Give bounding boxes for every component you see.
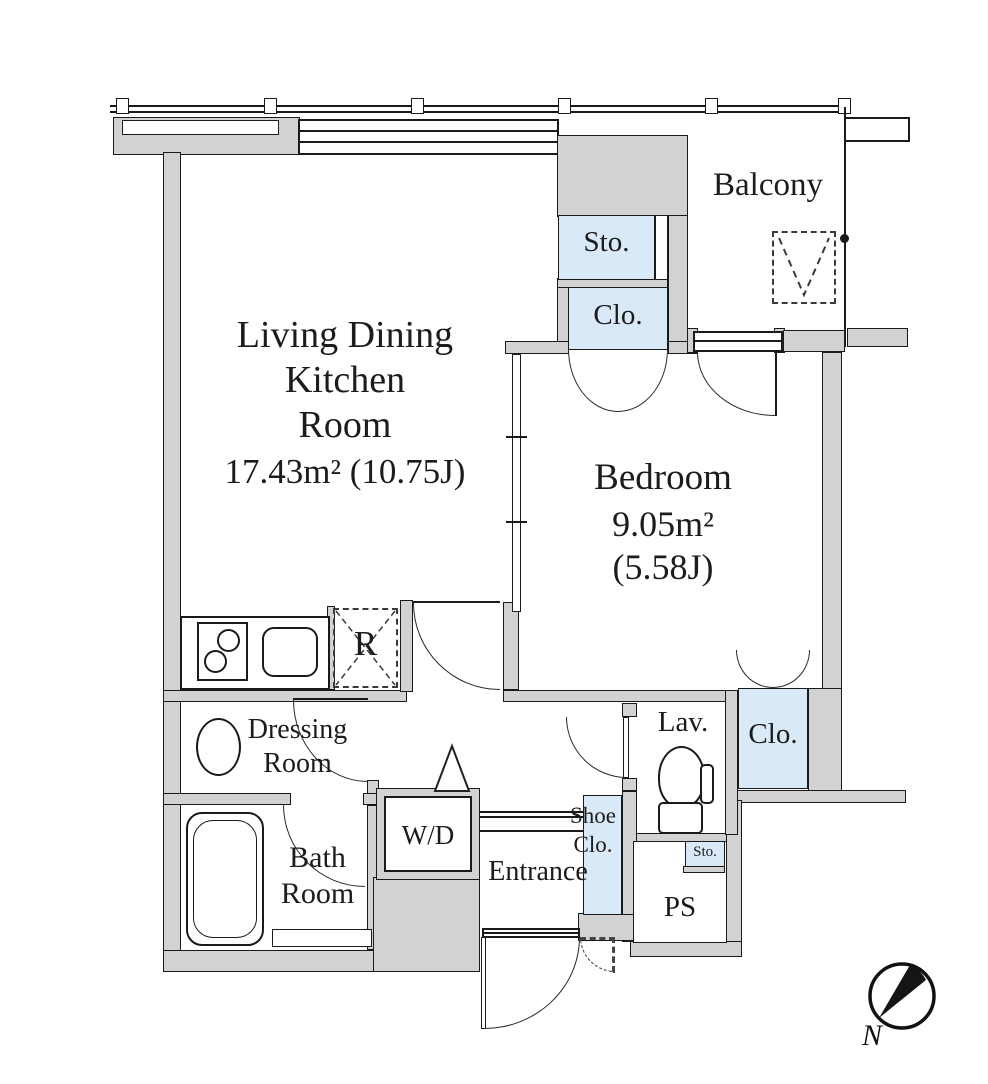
railing-post	[411, 98, 424, 114]
storage-small-label: Sto.	[685, 844, 725, 861]
window	[122, 120, 279, 135]
neighbor-wall-line	[846, 117, 910, 119]
wall-segment	[400, 600, 413, 692]
wall-left	[163, 152, 181, 972]
closet-bedroom-door-arc	[736, 650, 773, 688]
shoe-closet-label: Shoe	[553, 803, 633, 828]
wd-label: W/D	[384, 821, 472, 851]
balcony-door-leaf	[775, 352, 777, 416]
compass-north-label: N	[861, 1019, 884, 1050]
entry-sill-line	[482, 932, 580, 934]
neighbor-wall-line	[846, 140, 910, 142]
bedroom-tatami-label: (5.58J)	[513, 548, 813, 588]
compass-icon: N	[860, 950, 944, 1050]
rail-joint-dot	[840, 234, 849, 243]
window-line	[298, 141, 559, 143]
storage-top-label: Sto.	[558, 227, 655, 259]
wall-segment	[503, 602, 519, 690]
closet-bedroom-label: Clo.	[736, 719, 810, 751]
shoe-closet-label: Clo.	[553, 832, 633, 857]
neighbor-wall-line	[908, 117, 910, 142]
ps-label: PS	[633, 892, 727, 924]
dressing-label: Dressing	[205, 715, 390, 746]
bath-shelf	[272, 929, 372, 947]
ldk-area-tatami: (10.75J)	[350, 452, 466, 491]
refrigerator-label: R	[333, 625, 398, 664]
entry-door-arc	[484, 937, 580, 1029]
ldk-label: Room	[175, 405, 515, 447]
wall-segment	[163, 690, 407, 702]
wall-right	[822, 352, 842, 690]
wall-segment	[373, 877, 480, 972]
ldk-window	[298, 119, 559, 155]
closet-top-door-arc	[618, 349, 668, 412]
wall-segment	[783, 330, 845, 352]
closet-bedroom-door-arc	[773, 650, 810, 688]
kitchen-sink	[262, 627, 318, 677]
stove-burner	[217, 629, 240, 652]
railing-post	[558, 98, 571, 114]
toilet-handle	[700, 764, 714, 804]
bath-label: Bath	[250, 841, 385, 874]
window-line	[298, 130, 559, 132]
wall-segment	[622, 778, 637, 791]
storage-gap	[655, 215, 668, 280]
stove-burner	[204, 650, 227, 673]
wall-segment	[557, 135, 688, 217]
railing-post	[116, 98, 129, 114]
wall-segment	[808, 688, 842, 791]
balcony-label: Balcony	[690, 167, 846, 203]
ldk-area-value: 17.43m²	[225, 452, 341, 491]
wall-segment	[503, 690, 738, 702]
ldk-door-arc	[413, 603, 500, 690]
neighbor-wall-stub	[847, 328, 908, 347]
ldk-label: Kitchen	[175, 360, 515, 402]
closet-top-label: Clo.	[568, 300, 668, 332]
wall-segment	[630, 941, 742, 957]
dressing-label: Room	[205, 749, 390, 780]
evacuation-hatch	[772, 231, 836, 304]
balcony-door-arc	[697, 352, 775, 416]
wall-segment	[683, 866, 725, 873]
lavatory-door-arc	[566, 717, 627, 778]
railing-post	[705, 98, 718, 114]
closet-top-door-arc	[568, 349, 618, 412]
ldk-area-label: 17.43m² (10.75J)	[160, 453, 530, 492]
toilet-tank	[658, 802, 703, 834]
wall-segment	[363, 793, 377, 805]
railing-post	[264, 98, 277, 114]
lavatory-label: Lav.	[638, 707, 728, 739]
window-line	[693, 340, 783, 342]
wd-door-icon	[433, 743, 471, 793]
wall-segment	[725, 790, 906, 803]
wall-segment	[622, 703, 637, 717]
bathtub-inner	[193, 820, 257, 938]
bath-label: Room	[250, 877, 385, 910]
balcony-rail-right	[844, 107, 846, 347]
railing-line	[110, 111, 850, 113]
ldk-label: Living Dining	[175, 315, 515, 357]
bedroom-window	[693, 331, 783, 352]
wall-segment	[163, 793, 291, 805]
toilet-bowl	[658, 746, 705, 808]
floor-plan: Balcony Living Dining Kitchen Room 17.43…	[0, 0, 988, 1084]
bedroom-label: Bedroom	[513, 458, 813, 499]
bedroom-area-label: 9.05m²	[513, 505, 813, 545]
wall-segment	[668, 215, 688, 353]
entry-door-dashed-arc	[580, 937, 615, 972]
hatch-arrow-icon	[774, 233, 834, 302]
entrance-label: Entrance	[464, 857, 612, 888]
railing-line	[110, 105, 850, 107]
